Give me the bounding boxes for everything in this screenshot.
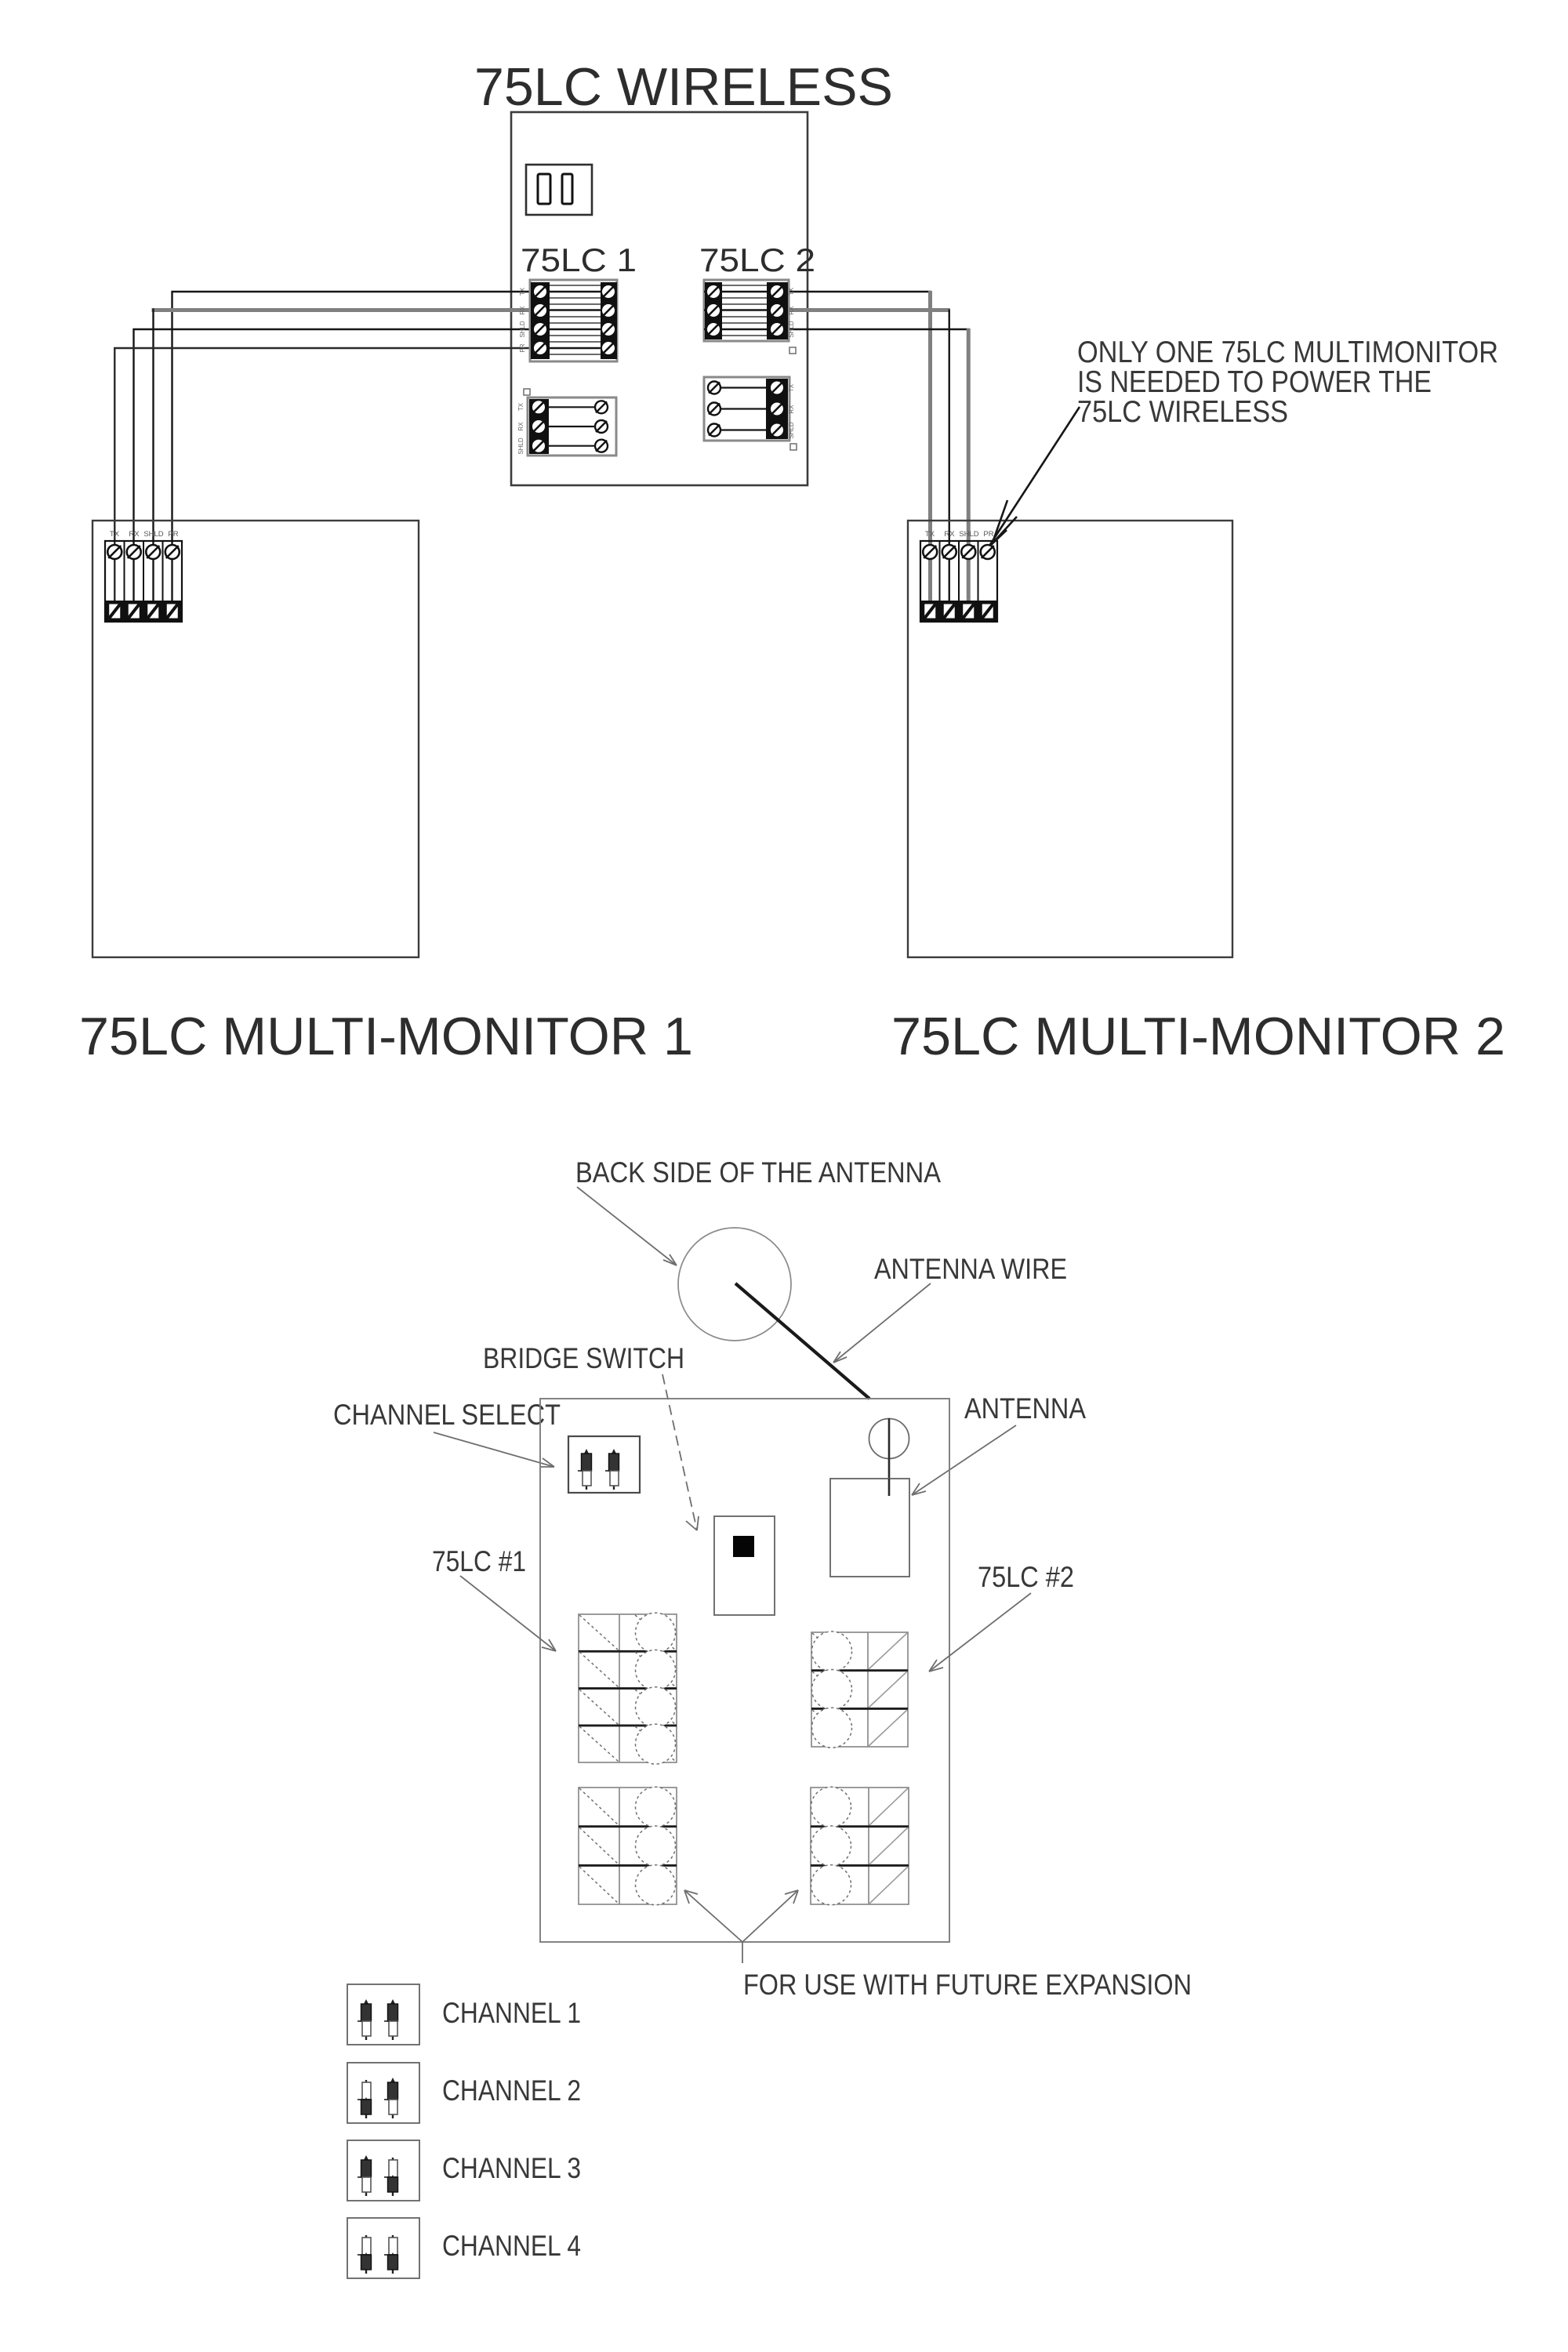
svg-text:ANTENNA: ANTENNA: [964, 1392, 1086, 1425]
svg-text:TX: TX: [519, 287, 526, 296]
svg-text:75LC MULTI-MONITOR 1: 75LC MULTI-MONITOR 1: [79, 1007, 693, 1066]
svg-text:IS NEEDED TO POWER THE: IS NEEDED TO POWER THE: [1077, 365, 1432, 399]
svg-text:75LC WIRELESS: 75LC WIRELESS: [474, 57, 893, 117]
svg-text:RX: RX: [129, 530, 140, 539]
svg-text:RX: RX: [519, 306, 526, 315]
svg-text:RX: RX: [517, 422, 524, 431]
svg-text:75LC 1: 75LC 1: [521, 241, 637, 278]
svg-text:SHLD: SHLD: [517, 437, 524, 455]
svg-text:RX: RX: [788, 306, 795, 315]
svg-text:TX: TX: [788, 287, 795, 296]
svg-text:SHLD: SHLD: [788, 422, 795, 439]
svg-text:SHLD: SHLD: [959, 530, 978, 539]
svg-text:CHANNEL 3: CHANNEL 3: [442, 2152, 581, 2184]
svg-text:RX: RX: [944, 530, 955, 539]
svg-text:CHANNEL SELECT: CHANNEL SELECT: [333, 1399, 561, 1431]
svg-text:SHLD: SHLD: [519, 321, 526, 338]
svg-text:75LC WIRELESS: 75LC WIRELESS: [1077, 395, 1288, 429]
svg-text:FOR USE WITH FUTURE EXPANSION: FOR USE WITH FUTURE EXPANSION: [743, 1969, 1192, 2001]
svg-text:PR: PR: [983, 530, 993, 539]
svg-text:ONLY ONE 75LC MULTIMONITOR: ONLY ONE 75LC MULTIMONITOR: [1077, 336, 1498, 369]
svg-text:TX: TX: [517, 402, 524, 411]
svg-text:SHLD: SHLD: [788, 321, 795, 338]
svg-text:75LC 2: 75LC 2: [699, 241, 815, 278]
svg-text:75LC #1: 75LC #1: [432, 1545, 526, 1577]
svg-text:ANTENNA WIRE: ANTENNA WIRE: [874, 1253, 1067, 1285]
svg-text:BRIDGE SWITCH: BRIDGE SWITCH: [483, 1342, 684, 1374]
svg-text:TX: TX: [925, 530, 935, 539]
svg-text:75LC MULTI-MONITOR 2: 75LC MULTI-MONITOR 2: [891, 1007, 1505, 1066]
svg-text:BACK SIDE OF THE ANTENNA: BACK SIDE OF THE ANTENNA: [575, 1156, 941, 1189]
svg-text:CHANNEL 4: CHANNEL 4: [442, 2230, 581, 2262]
svg-text:75LC #2: 75LC #2: [978, 1561, 1074, 1593]
svg-text:PR: PR: [519, 343, 526, 352]
svg-text:RX: RX: [788, 405, 795, 414]
svg-text:SHLD: SHLD: [143, 530, 163, 539]
svg-text:TX: TX: [110, 530, 120, 539]
svg-text:CHANNEL 2: CHANNEL 2: [442, 2074, 581, 2107]
svg-text:CHANNEL 1: CHANNEL 1: [442, 1997, 581, 2029]
svg-text:TX: TX: [788, 383, 795, 392]
svg-text:PR: PR: [168, 530, 178, 539]
